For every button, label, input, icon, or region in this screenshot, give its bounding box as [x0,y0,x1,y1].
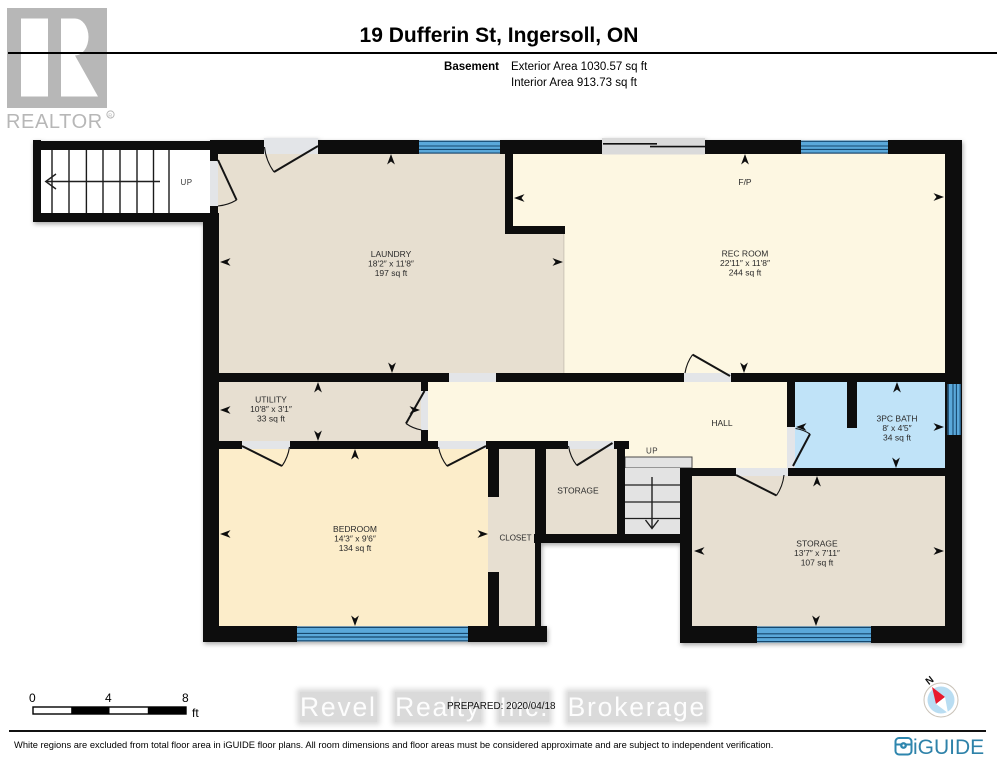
svg-text:4: 4 [105,691,112,705]
svg-text:22′11″ x 11′8″: 22′11″ x 11′8″ [720,258,770,268]
svg-text:34 sq ft: 34 sq ft [883,433,912,443]
svg-text:3PC BATH: 3PC BATH [877,414,918,424]
svg-text:107 sq ft: 107 sq ft [801,558,834,568]
svg-text:REC ROOM: REC ROOM [722,249,769,259]
svg-text:8: 8 [182,691,189,705]
svg-text:CLOSET: CLOSET [499,534,531,543]
svg-text:UP: UP [180,178,192,187]
svg-text:244 sq ft: 244 sq ft [729,268,762,278]
svg-text:HALL: HALL [711,418,733,428]
svg-text:18′2″ x 11′8″: 18′2″ x 11′8″ [368,259,414,269]
svg-text:F/P: F/P [738,177,752,187]
svg-text:STORAGE: STORAGE [557,486,599,496]
svg-text:UTILITY: UTILITY [255,395,287,405]
svg-text:197 sq ft: 197 sq ft [375,268,408,278]
svg-text:BEDROOM: BEDROOM [333,524,377,534]
svg-text:8′ x 4′5″: 8′ x 4′5″ [882,423,911,433]
svg-text:STORAGE: STORAGE [796,539,838,549]
svg-text:LAUNDRY: LAUNDRY [371,249,412,259]
svg-text:UP: UP [646,447,658,456]
svg-text:ft: ft [192,706,199,720]
svg-text:14′3″ x 9′6″: 14′3″ x 9′6″ [334,534,376,544]
svg-text:134 sq ft: 134 sq ft [339,543,372,553]
svg-text:iGUIDE: iGUIDE [913,736,984,759]
svg-text:13′7″ x 7′11″: 13′7″ x 7′11″ [794,548,840,558]
svg-text:0: 0 [29,691,36,705]
svg-text:33 sq ft: 33 sq ft [257,414,286,424]
svg-text:10′8″ x 3′1″: 10′8″ x 3′1″ [250,404,292,414]
